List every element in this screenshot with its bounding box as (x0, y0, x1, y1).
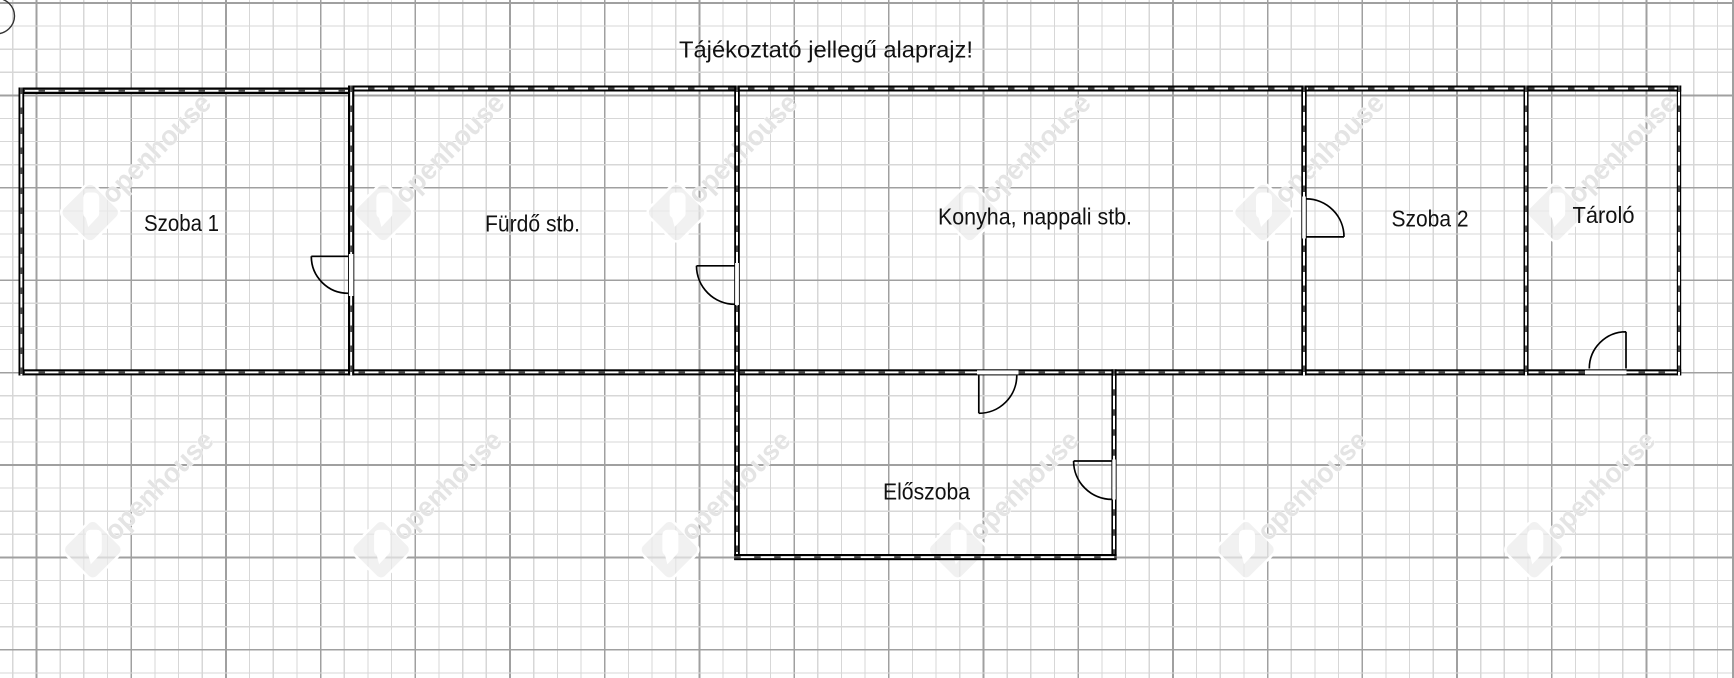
svg-text:openhouse: openhouse (1268, 87, 1390, 209)
svg-text:openhouse: openhouse (1561, 87, 1683, 209)
svg-text:openhouse: openhouse (97, 424, 219, 546)
svg-text:Tájékoztató jellegű alaprajz!: Tájékoztató jellegű alaprajz! (679, 37, 973, 63)
svg-text:openhouse: openhouse (388, 87, 510, 209)
svg-text:Tároló: Tároló (1573, 202, 1635, 228)
svg-text:openhouse: openhouse (1251, 424, 1373, 546)
svg-text:openhouse: openhouse (95, 87, 217, 209)
svg-text:Szoba 1: Szoba 1 (144, 210, 219, 236)
svg-text:Konyha, nappali stb.: Konyha, nappali stb. (938, 204, 1132, 230)
svg-text:Fürdő stb.: Fürdő stb. (485, 211, 580, 237)
svg-text:openhouse: openhouse (1539, 424, 1661, 546)
svg-text:openhouse: openhouse (386, 424, 508, 546)
svg-text:openhouse: openhouse (962, 424, 1084, 546)
svg-text:Szoba 2: Szoba 2 (1392, 206, 1469, 232)
svg-text:Előszoba: Előszoba (883, 478, 970, 504)
